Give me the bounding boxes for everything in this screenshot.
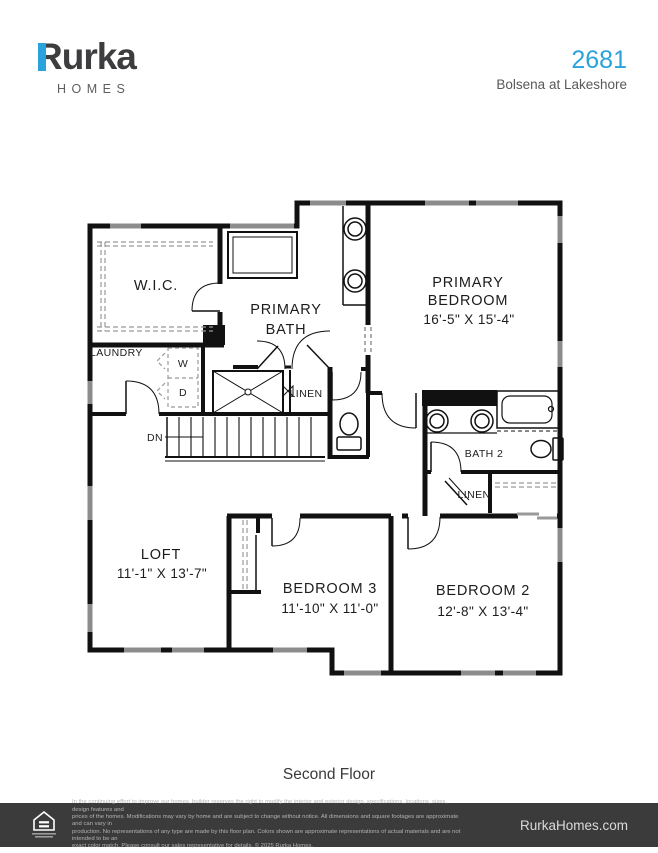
label-bedroom2: BEDROOM 2 (436, 583, 530, 599)
label-washer: W (178, 358, 188, 370)
bedroom2-closet-bypass-doors (517, 514, 557, 518)
label-dryer: D (179, 387, 187, 399)
brand-logo: Rurka HOMES (36, 38, 136, 96)
primary-bedroom-opening-dashes (365, 327, 371, 355)
bedroom3-door (272, 518, 300, 546)
brand-name: Rurka (36, 38, 136, 75)
disclaimer-text: In the continuing effort to improve our … (72, 799, 464, 850)
laundry-appliance-dashes (157, 348, 198, 407)
primary-bath-vanity-sinks (343, 206, 366, 305)
label-wic: W.I.C. (134, 278, 178, 294)
laundry-door (126, 381, 159, 414)
primary-bedroom-door (382, 393, 416, 428)
wic-door (192, 283, 220, 311)
bath2-door (431, 442, 461, 472)
label-bedroom3-dims: 11'-10" X 11'-0" (281, 601, 378, 616)
plan-number: 2681 (496, 48, 627, 73)
label-bedroom3: BEDROOM 3 (283, 581, 377, 597)
floorplan-drawing: W.I.C. PRIMARY BATH PRIMARY BEDROOM 16'-… (85, 195, 579, 687)
floorplan-flyer: Rurka HOMES 2681 Bolsena at Lakeshore (0, 0, 658, 853)
floor-caption: Second Floor (0, 766, 658, 784)
disclaimer-line: In the continuing effort to improve our … (72, 799, 464, 814)
equal-housing-icon (31, 809, 57, 841)
primary-bath-toilet (337, 413, 361, 450)
stairs (165, 417, 325, 461)
label-primary-bedroom-1: PRIMARY (432, 275, 503, 291)
primary-bath-door-left (257, 341, 285, 369)
footer-bar: In the continuing effort to improve our … (0, 803, 658, 847)
primary-bath-tub (228, 232, 297, 278)
brand-subtitle: HOMES (36, 82, 136, 96)
website-link[interactable]: RurkaHomes.com (520, 818, 628, 833)
brand-accent-bar (38, 43, 46, 71)
label-primary-bath-2: BATH (266, 322, 307, 338)
label-primary-bedroom-dims: 16'-5" X 15'-4" (423, 312, 514, 327)
bath2-tub (497, 391, 560, 431)
label-primary-bedroom-2: BEDROOM (428, 293, 509, 309)
bath2-sinks (425, 410, 497, 433)
bedroom2-door (408, 517, 440, 549)
primary-bath-shower (213, 371, 293, 413)
bedroom3-closet-rod-dashes (243, 520, 247, 590)
disclaimer-line: prices of the homes. Modifications may v… (72, 814, 464, 829)
label-dn: DN (147, 432, 163, 444)
label-bedroom2-dims: 12'-8" X 13'-4" (437, 604, 528, 619)
community-name: Bolsena at Lakeshore (496, 77, 627, 92)
disclaimer-line: production. No representations of any ty… (72, 829, 464, 844)
label-bath2: BATH 2 (465, 448, 503, 460)
label-loft-dims: 11'-1" X 13'-7" (117, 566, 207, 581)
water-closet-door (332, 372, 361, 400)
label-primary-bath-1: PRIMARY (250, 302, 321, 318)
label-laundry: LAUNDRY (90, 347, 143, 359)
wall-mass (203, 325, 225, 345)
label-linen-lower: LINEN (458, 489, 491, 501)
bedroom2-closet-rod-dashes (495, 483, 557, 487)
plan-header: 2681 Bolsena at Lakeshore (496, 48, 627, 92)
bath2-vanity-wall (422, 390, 497, 406)
label-loft: LOFT (141, 547, 181, 563)
label-linen-upper: LINEN (290, 388, 323, 400)
disclaimer-line: exact color match. Please consult our sa… (72, 843, 464, 850)
